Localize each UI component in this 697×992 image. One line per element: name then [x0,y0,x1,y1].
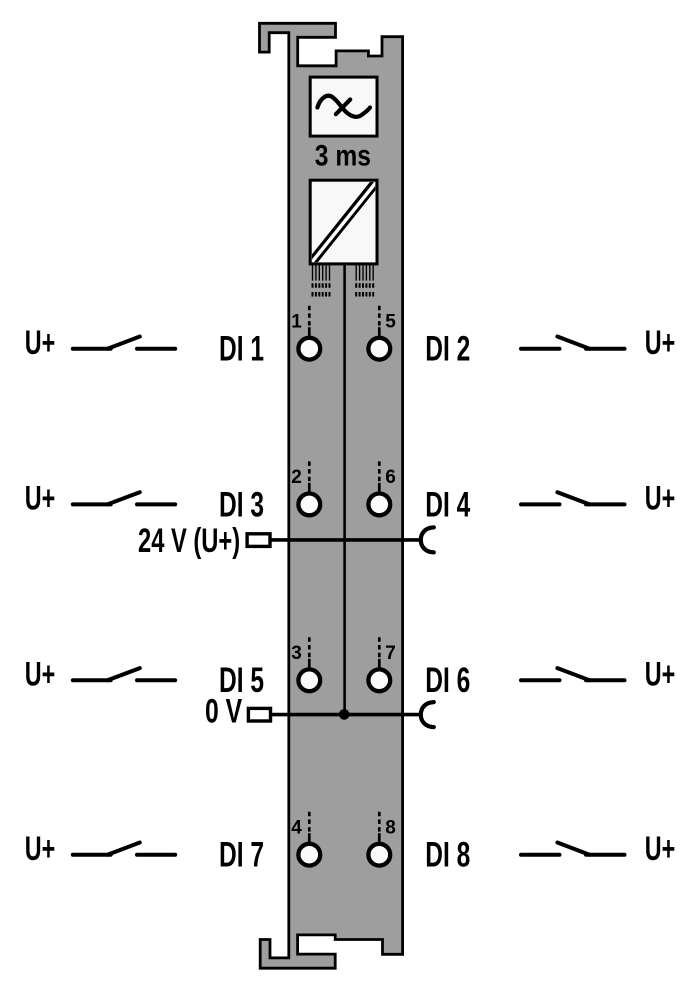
svg-text:U+: U+ [645,656,676,694]
svg-text:4: 4 [291,817,302,838]
svg-text:DI 3: DI 3 [219,485,264,524]
svg-text:U+: U+ [25,480,56,518]
svg-text:DI 7: DI 7 [219,836,264,875]
svg-text:DI 2: DI 2 [425,330,470,369]
svg-text:U+: U+ [25,830,56,868]
svg-text:0 V: 0 V [205,692,242,730]
svg-text:U+: U+ [645,830,676,868]
svg-text:U+: U+ [25,656,56,694]
svg-text:2: 2 [291,467,302,488]
svg-text:DI 8: DI 8 [425,836,470,875]
svg-text:U+: U+ [645,480,676,518]
svg-text:DI 6: DI 6 [425,661,470,700]
svg-text:DI 4: DI 4 [425,485,470,524]
svg-text:8: 8 [385,817,396,838]
svg-text:3: 3 [291,643,302,664]
svg-text:6: 6 [385,467,396,488]
svg-text:U+: U+ [645,324,676,362]
svg-text:U+: U+ [25,324,56,362]
svg-text:24 V (U+): 24 V (U+) [138,522,240,560]
svg-text:3 ms: 3 ms [315,140,371,173]
svg-text:1: 1 [291,311,302,332]
svg-text:5: 5 [385,311,396,332]
svg-text:7: 7 [385,643,396,664]
svg-text:DI 1: DI 1 [219,330,264,369]
